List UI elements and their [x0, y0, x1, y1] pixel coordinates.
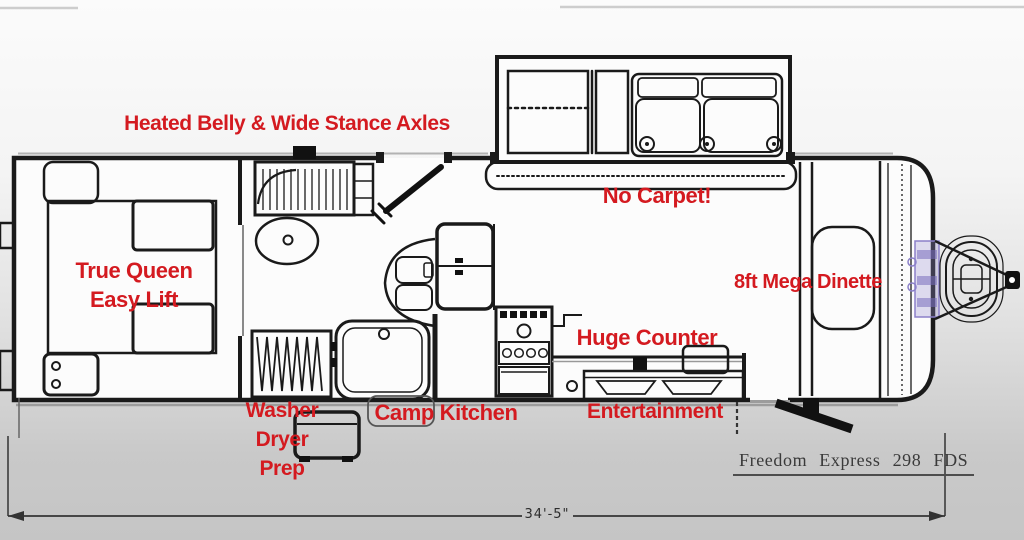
entry-steps — [737, 398, 852, 434]
dimension-line — [8, 433, 945, 521]
label-camp-kitchen: Camp Kitchen — [374, 400, 517, 426]
label-true-queen-line2: Easy Lift — [75, 285, 192, 314]
label-washer-line2: Dryer — [246, 425, 319, 454]
label-true-queen: True Queen Easy Lift — [75, 256, 192, 314]
label-huge-counter: Huge Counter — [577, 325, 718, 351]
label-no-carpet: No Carpet! — [603, 183, 711, 209]
overall-length-dimension: 34'-5" — [524, 507, 569, 522]
hitch-coupler — [1005, 271, 1020, 289]
model-name: Freedom Express 298 FDS — [733, 450, 974, 476]
trailer-body-fill — [14, 57, 933, 400]
label-mega-dinette: 8ft Mega Dinette — [734, 271, 882, 294]
floorplan-canvas: Heated Belly & Wide Stance Axles No Carp… — [0, 0, 1024, 540]
label-heated-belly: Heated Belly & Wide Stance Axles — [124, 112, 450, 136]
roof-vent — [293, 146, 316, 159]
label-true-queen-line1: True Queen — [75, 256, 192, 285]
label-washer-dryer-prep: Washer Dryer Prep — [246, 396, 319, 483]
label-washer-line1: Washer — [246, 396, 319, 425]
label-washer-line3: Prep — [246, 454, 319, 483]
frame-artifact-lines — [0, 7, 1024, 8]
a-frame-hitch — [908, 236, 1020, 322]
label-entertainment: Entertainment — [587, 400, 723, 424]
